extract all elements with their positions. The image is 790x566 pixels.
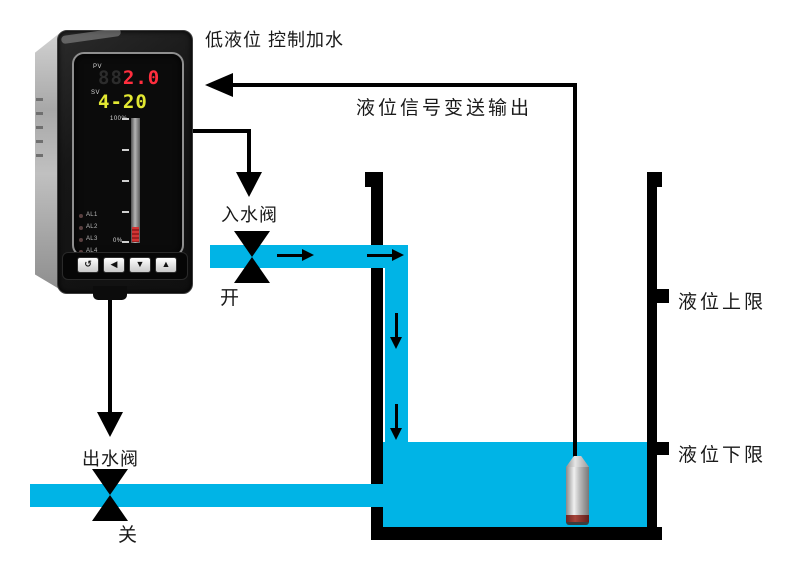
pv-value: 2.0: [123, 67, 160, 89]
signal-arrowhead-left-icon: [205, 73, 233, 97]
control-arrowhead-down-icon: [236, 172, 262, 197]
downflow-arrow-icon: [390, 337, 402, 349]
up-button: ▲: [155, 257, 177, 273]
control-line-vertical: [247, 129, 251, 174]
tank-bottom: [371, 527, 662, 540]
level-control-diagram: 低液位 控制加水 液位信号变送输出 液位上限 液位下限 入水阀 开 出水阀 关: [0, 0, 790, 566]
signal-output-label: 液位信号变送输出: [356, 93, 532, 120]
alarm-label: AL2: [86, 224, 98, 230]
flow-arrow-shaft: [367, 254, 393, 257]
level-controller: PV 882.0 SV 4-20 100% 0% AL1 AL2 AL3 AL4…: [33, 28, 193, 304]
downflow-arrow-shaft: [395, 313, 398, 338]
signal-line-horizontal: [228, 83, 577, 87]
alarm-led: [79, 226, 83, 230]
tank-water: [383, 442, 647, 527]
side-vent: [36, 112, 43, 115]
control-line-horizontal: [186, 129, 249, 133]
scale-min-label: 0%: [113, 238, 123, 244]
pv-readout: 882.0: [98, 69, 160, 88]
outlet-valve-icon: [92, 469, 128, 495]
side-vent: [36, 154, 43, 157]
flow-arrow-shaft: [277, 254, 303, 257]
scale-tick: [122, 211, 129, 213]
inlet-valve-label: 入水阀: [221, 201, 278, 227]
scale-tick: [122, 241, 129, 243]
side-vent: [36, 126, 43, 129]
alarm-label: AL1: [86, 212, 98, 218]
side-vent: [36, 98, 43, 101]
sv-value: 4-20: [98, 93, 148, 112]
alarm-label: AL3: [86, 236, 98, 242]
cycle-button: ↺: [77, 257, 99, 273]
left-button: ◀: [103, 257, 125, 273]
inlet-valve-icon: [234, 257, 270, 283]
scale-tick: [122, 118, 129, 120]
scale-tick: [122, 180, 129, 182]
lower-limit-label: 液位下限: [678, 440, 766, 467]
mount-clamp: [93, 286, 127, 300]
probe-body: [566, 467, 589, 515]
lower-limit-tick: [656, 442, 669, 455]
upper-limit-tick: [656, 289, 669, 303]
outlet-valve-label: 出水阀: [82, 445, 139, 471]
inlet-valve-state: 开: [220, 283, 239, 310]
scale-tick: [122, 149, 129, 151]
probe-cable-line: [573, 83, 577, 459]
inlet-valve-icon: [234, 231, 270, 257]
outlet-arrowhead-down-icon: [97, 412, 123, 437]
down-button: ▼: [129, 257, 151, 273]
side-vent: [36, 140, 43, 143]
downflow-arrow-icon: [390, 428, 402, 440]
bargraph-fill: [132, 227, 139, 242]
outlet-pipe: [30, 484, 383, 507]
outlet-control-line: [108, 288, 112, 414]
outlet-valve-state: 关: [118, 520, 137, 547]
upper-limit-label: 液位上限: [678, 287, 766, 314]
tank-right-wall: [647, 176, 657, 540]
alarm-led: [79, 238, 83, 242]
level-probe: [566, 456, 589, 525]
outlet-valve-icon: [92, 495, 128, 521]
flow-arrow-right-icon: [392, 249, 404, 261]
alarm-led: [79, 214, 83, 218]
flow-arrow-right-icon: [302, 249, 314, 261]
pv-unlit-digits: 88: [98, 67, 123, 89]
downflow-arrow-shaft: [395, 404, 398, 429]
diagram-title: 低液位 控制加水: [205, 26, 344, 52]
probe-band: [566, 515, 589, 522]
bargraph-track: [131, 118, 140, 243]
probe-cone: [566, 456, 589, 467]
probe-cap: [566, 522, 589, 525]
